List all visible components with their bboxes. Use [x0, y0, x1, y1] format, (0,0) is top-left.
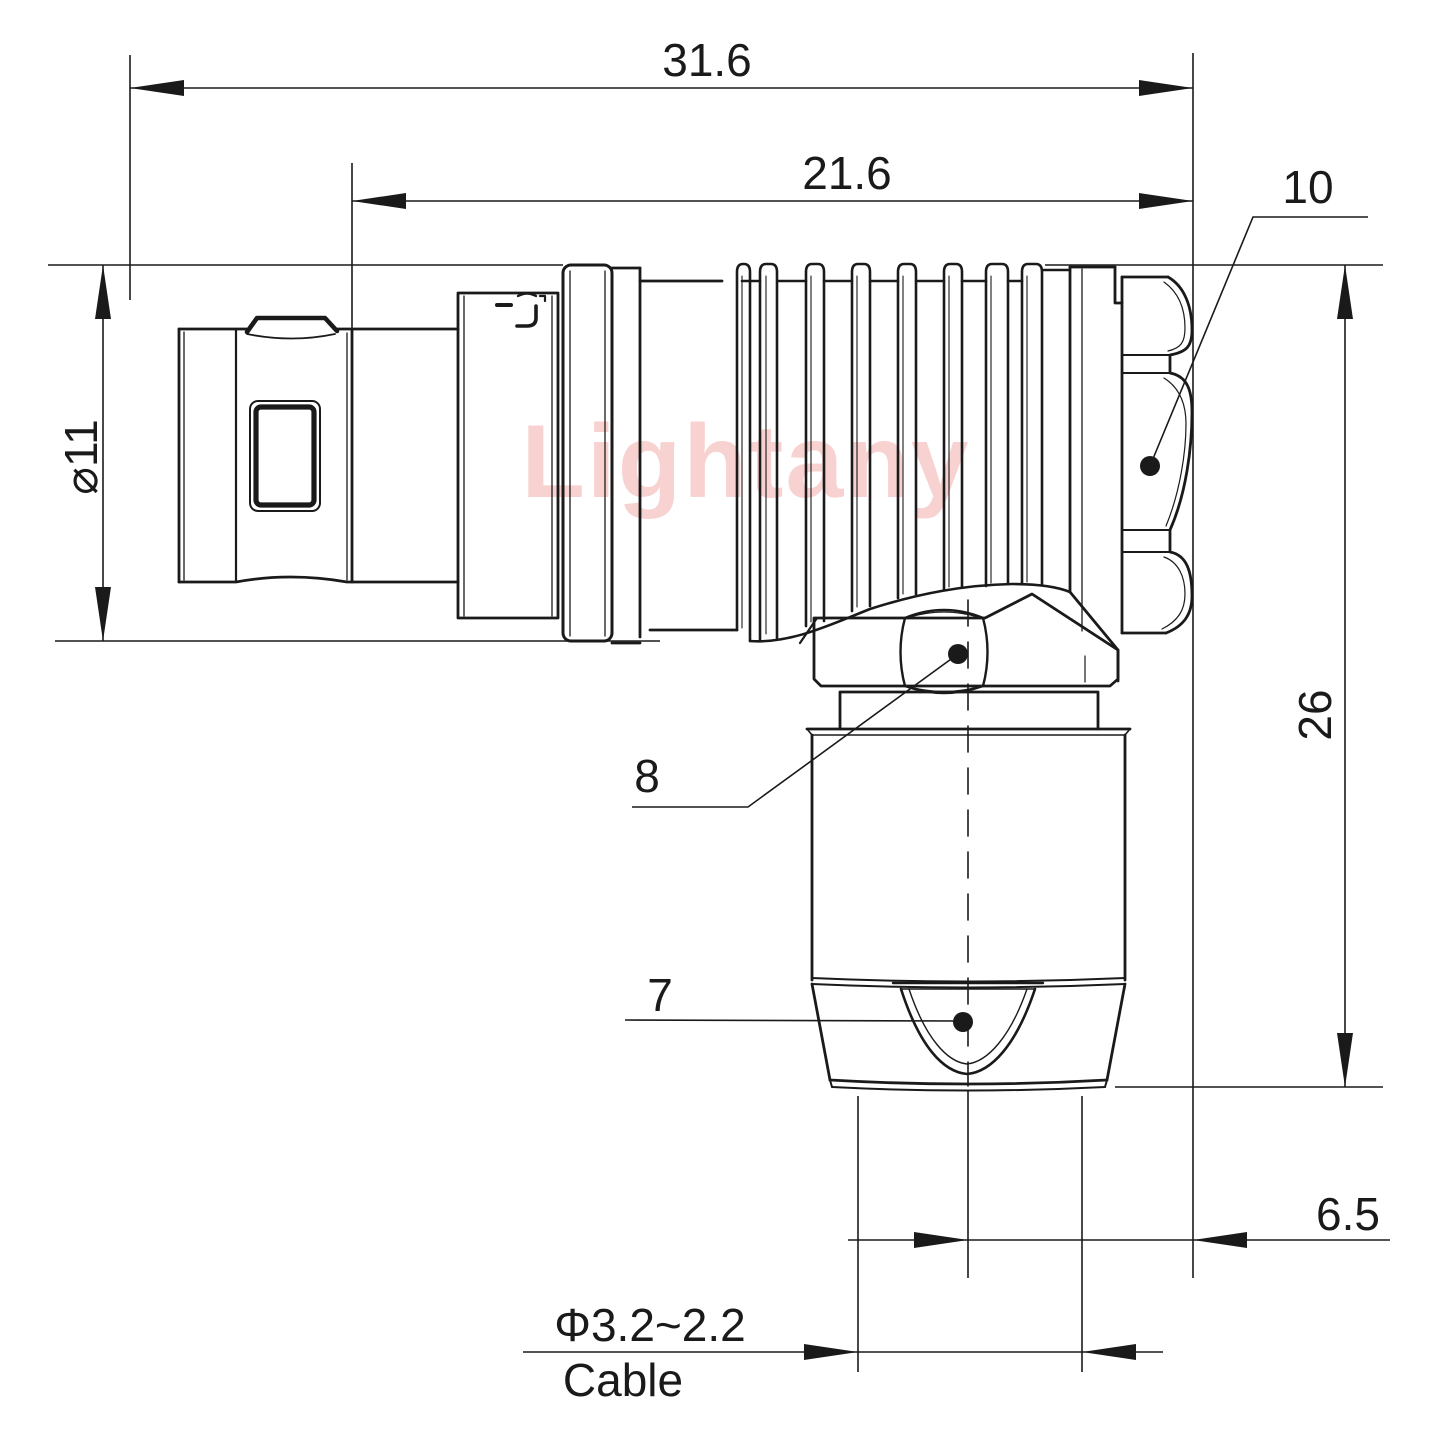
dim-cable-diameter-label: Φ3.2~2.2: [554, 1299, 745, 1351]
dim-total-height-label: 26: [1289, 689, 1341, 740]
leader-dot-coupling-nut: [948, 644, 968, 664]
brand-mark: [497, 294, 545, 327]
leader-dot-strain-relief: [953, 1012, 973, 1032]
callout-strain-relief-label: 7: [647, 969, 673, 1021]
leader-coupling-nut: [632, 654, 958, 807]
callout-coupling-nut-label: 8: [634, 750, 660, 802]
connector-outline: [179, 264, 1192, 1091]
elbow-crotch-curve: [750, 584, 1070, 641]
coupling-nut: [814, 594, 1118, 693]
technical-drawing-page: Lightany: [0, 0, 1440, 1440]
rear-sleeve: [179, 318, 458, 582]
dim-rear-diameter-label: ⌀11: [55, 419, 107, 494]
dim-front-length-label: 21.6: [802, 147, 892, 199]
callout-end-nut-label: 10: [1282, 161, 1333, 213]
dimension-lines: [48, 53, 1390, 1372]
leader-strain-relief: [625, 1020, 963, 1021]
washer-ring: [840, 692, 1098, 729]
dim-overall-length-label: 31.6: [662, 34, 752, 86]
leader-dot-end-nut: [1140, 456, 1160, 476]
latch-window-outer: [250, 401, 320, 511]
dim-exit-offset-label: 6.5: [1316, 1188, 1380, 1240]
end-nut: [1070, 267, 1192, 681]
connector-technical-drawing: Lightany: [0, 0, 1440, 1440]
dimension-arrows: [95, 80, 1353, 1360]
latch-window-inner: [256, 407, 314, 505]
dim-cable-word-label: Cable: [563, 1354, 683, 1406]
